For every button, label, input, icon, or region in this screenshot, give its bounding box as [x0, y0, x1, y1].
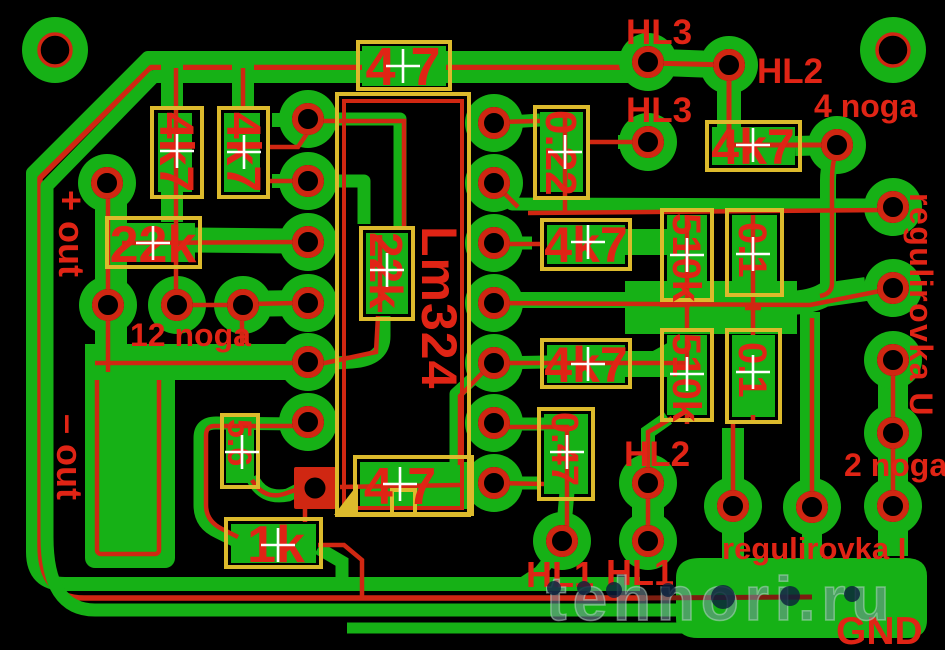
svg-text:HL2: HL2 — [757, 52, 823, 91]
svg-text:regulirovka U: regulirovka U — [903, 193, 939, 417]
svg-text:4k7: 4k7 — [544, 217, 627, 273]
svg-text:5.6: 5.6 — [220, 419, 258, 466]
svg-text:Lm324: Lm324 — [411, 226, 467, 389]
svg-text:0.47: 0.47 — [543, 412, 585, 486]
svg-text:4 noga: 4 noga — [814, 88, 917, 124]
svg-text:HL3: HL3 — [626, 13, 692, 52]
svg-text:2 noga: 2 noga — [844, 447, 945, 483]
svg-text:HL3: HL3 — [626, 91, 692, 130]
svg-text:regulirovka I: regulirovka I — [722, 531, 906, 566]
svg-text:– out: – out — [49, 414, 90, 500]
svg-text:HL2: HL2 — [624, 435, 690, 474]
svg-text:12 noga: 12 noga — [130, 317, 251, 353]
svg-text:+ out: + out — [51, 190, 92, 277]
